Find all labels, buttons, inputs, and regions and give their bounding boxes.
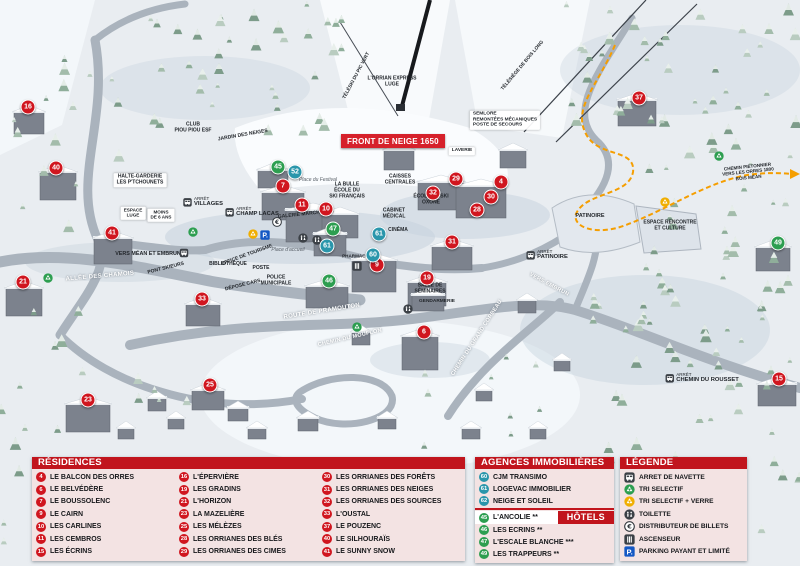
toilet-icon: [624, 509, 635, 520]
legend-key-label: ARRET DE NAVETTE: [639, 474, 705, 481]
legend-item-label: LES ORRIANES DES FORÊTS: [336, 474, 435, 481]
residences-header: RÉSIDENCES: [32, 457, 465, 469]
hotel-marker-badge: 46: [479, 525, 489, 535]
svg-text:P.: P.: [627, 547, 633, 556]
map-marker-21[interactable]: 21: [16, 275, 31, 290]
ski-resort-map-page: CLUB PIOU PIOU ESFJARDIN DES NEIGESHALTE…: [0, 0, 800, 566]
map-marker-16[interactable]: 16: [21, 100, 36, 115]
map-marker-23[interactable]: 23: [81, 393, 96, 408]
front-de-neige-banner: FRONT DE NEIGE 1650: [341, 134, 445, 148]
parking-icon: P.: [624, 546, 635, 557]
elevator-icon: [624, 534, 635, 545]
hotel-marker-badge: 45: [479, 513, 489, 523]
map-marker-60[interactable]: 60: [366, 248, 381, 263]
legend-item-49: 49LES TRAPPEURS **: [479, 548, 610, 560]
residence-marker-badge: 4: [36, 472, 46, 482]
legend-item-label: LA MAZELIÈRE: [193, 511, 244, 518]
residence-marker-badge: 37: [322, 522, 332, 532]
residences-column-3: 30LES ORRIANES DES FORÊTS31LES ORRIANES …: [322, 471, 461, 558]
residence-marker-badge: 23: [179, 509, 189, 519]
legend-item-29: 29LES ORRIANES DES CIMES: [179, 545, 318, 557]
legend-item-60: 60CJM TRANSIMO: [479, 471, 610, 483]
legend-item-47: 47L'ESCALE BLANCHE ***: [479, 536, 610, 548]
legend-key-bus: ARRET DE NAVETTE: [624, 471, 743, 483]
hotels-header-row: 45L'ANCOLIE **HÔTELS: [475, 511, 614, 524]
residences-column-1: 4LE BALCON DES ORRES6LE BELVÉDÈRE7LE BOU…: [36, 471, 175, 558]
residence-marker-badge: 7: [36, 497, 46, 507]
legend-item-label: LES TRAPPEURS **: [493, 551, 559, 558]
legend-item-label: L'ANCOLIE **: [493, 514, 538, 521]
legend-item-62: 62NEIGE ET SOLEIL: [479, 495, 610, 507]
agency-marker-badge: 61: [479, 484, 489, 494]
legend-item-16: 16L'ÉPERVIÈRE: [179, 471, 318, 483]
legend-key-label: PARKING PAYANT ET LIMITÉ: [639, 548, 730, 555]
legend-item-label: LE CAIRN: [50, 511, 83, 518]
map-marker-32[interactable]: 32: [426, 186, 441, 201]
map-marker-15[interactable]: 15: [772, 372, 787, 387]
residence-marker-badge: 10: [36, 522, 46, 532]
residence-marker-badge: 32: [322, 497, 332, 507]
legend-item-label: LES ECRINS **: [493, 527, 542, 534]
residence-marker-badge: 6: [36, 485, 46, 495]
agences-hotels-list: 60CJM TRANSIMO61LOGEVAC IMMOBILIER62NEIG…: [475, 469, 614, 563]
agency-marker-badge: 62: [479, 496, 489, 506]
legend-item-15: 15LES ÉCRINS: [36, 545, 175, 557]
map-marker-19[interactable]: 19: [420, 271, 435, 286]
legend-key-label: TRI SELECTIF: [639, 486, 683, 493]
map-marker-7[interactable]: 7: [276, 179, 291, 194]
legend-item-45: 45L'ANCOLIE **: [479, 512, 538, 524]
legend-key-elevator: ASCENSEUR: [624, 533, 743, 545]
agency-marker-badge: 60: [479, 472, 489, 482]
map-marker-25[interactable]: 25: [203, 378, 218, 393]
map-marker-41[interactable]: 41: [105, 226, 120, 241]
residence-marker-badge: 19: [179, 485, 189, 495]
legend-item-11: 11LES CEMBROS: [36, 533, 175, 545]
legend-item-label: L'ESCALE BLANCHE ***: [493, 539, 574, 546]
legend-item-label: CJM TRANSIMO: [493, 474, 547, 481]
map-marker-33[interactable]: 33: [195, 292, 210, 307]
legend-item-label: L'HORIZON: [193, 498, 231, 505]
residence-marker-badge: 40: [322, 534, 332, 544]
map-marker-45[interactable]: 45: [271, 160, 286, 175]
residences-column-2: 16L'ÉPERVIÈRE19LES GRADINS21L'HORIZON23L…: [179, 471, 318, 558]
legend-item-32: 32LES ORRIANES DES SOURCES: [322, 496, 461, 508]
residences-list: 4LE BALCON DES ORRES6LE BELVÉDÈRE7LE BOU…: [32, 469, 465, 561]
legend-item-6: 6LE BELVÉDÈRE: [36, 483, 175, 495]
legend-item-4: 4LE BALCON DES ORRES: [36, 471, 175, 483]
map-marker-11[interactable]: 11: [295, 198, 310, 213]
residence-marker-badge: 29: [179, 547, 189, 557]
map-marker-29[interactable]: 29: [449, 172, 464, 187]
legend-item-10: 10LES CARLINES: [36, 521, 175, 533]
legend-key-label: ASCENSEUR: [639, 536, 680, 543]
legend-item-label: LES ORRIANES DES BLÉS: [193, 536, 282, 543]
map-marker-40[interactable]: 40: [49, 161, 64, 176]
recycleglass-icon: [624, 496, 635, 507]
legend-item-46: 46LES ECRINS **: [479, 524, 610, 536]
legend-item-7: 7LE BOUSSOLENC: [36, 496, 175, 508]
map-marker-4[interactable]: 4: [494, 175, 509, 190]
legend-item-19: 19LES GRADINS: [179, 483, 318, 495]
residence-marker-badge: 41: [322, 547, 332, 557]
legend-item-31: 31LES ORRIANES DES NEIGES: [322, 483, 461, 495]
legend-item-label: LOGEVAC IMMOBILIER: [493, 486, 571, 493]
legend-key-parking: P.PARKING PAYANT ET LIMITÉ: [624, 545, 743, 557]
legend-item-40: 40LE SILHOURAÏS: [322, 533, 461, 545]
residence-marker-badge: 21: [179, 497, 189, 507]
legend-item-label: LES ORRIANES DES CIMES: [193, 548, 286, 555]
legend-item-30: 30LES ORRIANES DES FORÊTS: [322, 471, 461, 483]
hotels-header: HÔTELS: [558, 511, 614, 524]
map-marker-52[interactable]: 52: [288, 165, 303, 180]
residence-marker-badge: 33: [322, 509, 332, 519]
map-marker-61[interactable]: 61: [372, 227, 387, 242]
map-marker-47[interactable]: 47: [326, 222, 341, 237]
map-marker-30[interactable]: 30: [484, 190, 499, 205]
hotel-marker-badge: 47: [479, 537, 489, 547]
legend-item-label: LES MÉLÈZES: [193, 523, 242, 530]
legende-list: ARRET DE NAVETTETRI SELECTIFTRI SELECTIF…: [620, 469, 747, 561]
legend-item-label: LES CARLINES: [50, 523, 101, 530]
legend-item-label: LE SUNNY SNOW: [336, 548, 395, 555]
legend-item-label: LE BOUSSOLENC: [50, 498, 110, 505]
legend-item-41: 41LE SUNNY SNOW: [322, 545, 461, 557]
map-marker-28[interactable]: 28: [470, 203, 485, 218]
legend-item-37: 37LE POUZENC: [322, 521, 461, 533]
residence-marker-badge: 25: [179, 522, 189, 532]
legend-item-9: 9LE CAIRN: [36, 508, 175, 520]
legend-item-label: LE BALCON DES ORRES: [50, 474, 134, 481]
residences-panel: RÉSIDENCES 4LE BALCON DES ORRES6LE BELVÉ…: [32, 457, 465, 561]
map-marker-10[interactable]: 10: [319, 202, 334, 217]
map-marker-31[interactable]: 31: [445, 235, 460, 250]
map-marker-46[interactable]: 46: [322, 274, 337, 289]
legend-item-25: 25LES MÉLÈZES: [179, 521, 318, 533]
map-marker-61[interactable]: 61: [320, 239, 335, 254]
legend-item-label: LE POUZENC: [336, 523, 381, 530]
legend-item-28: 28LES ORRIANES DES BLÉS: [179, 533, 318, 545]
legend-key-label: DISTRIBUTEUR DE BILLETS: [639, 523, 728, 530]
map-marker-6[interactable]: 6: [417, 325, 432, 340]
legende-header: LÉGENDE: [620, 457, 747, 469]
bus-icon: [624, 472, 635, 483]
legend-item-33: 33L'OUSTAL: [322, 508, 461, 520]
legend-key-label: TRI SELECTIF + VERRE: [639, 498, 714, 505]
legend-item-label: LES ÉCRINS: [50, 548, 92, 555]
legend-item-label: LES CEMBROS: [50, 536, 101, 543]
atm-icon: €: [624, 521, 635, 532]
residence-marker-badge: 9: [36, 509, 46, 519]
map-marker-49[interactable]: 49: [771, 236, 786, 251]
divider: [475, 508, 614, 510]
agences-panel: AGENCES IMMOBILIÈRES 60CJM TRANSIMO61LOG…: [475, 457, 614, 563]
hotel-marker-badge: 49: [479, 549, 489, 559]
recycle-icon: [624, 484, 635, 495]
agences-header: AGENCES IMMOBILIÈRES: [475, 457, 614, 469]
residence-marker-badge: 15: [36, 547, 46, 557]
svg-text:€: €: [626, 523, 632, 531]
legend-key-recycle: TRI SELECTIF: [624, 483, 743, 495]
legend-item-label: LES GRADINS: [193, 486, 241, 493]
residence-marker-badge: 31: [322, 485, 332, 495]
legend-key-recycleglass: TRI SELECTIF + VERRE: [624, 496, 743, 508]
residence-marker-badge: 11: [36, 534, 46, 544]
legend-item-label: LES ORRIANES DES SOURCES: [336, 498, 441, 505]
legend-item-label: L'ÉPERVIÈRE: [193, 474, 239, 481]
legend-item-23: 23LA MAZELIÈRE: [179, 508, 318, 520]
legend-item-61: 61LOGEVAC IMMOBILIER: [479, 483, 610, 495]
legend-item-label: L'OUSTAL: [336, 511, 370, 518]
legend-item-label: LE BELVÉDÈRE: [50, 486, 103, 493]
legende-panel: LÉGENDE ARRET DE NAVETTETRI SELECTIFTRI …: [620, 457, 747, 561]
legend-item-label: LES ORRIANES DES NEIGES: [336, 486, 433, 493]
residence-marker-badge: 28: [179, 534, 189, 544]
legend-item-label: NEIGE ET SOLEIL: [493, 498, 553, 505]
legend-item-21: 21L'HORIZON: [179, 496, 318, 508]
legend-key-atm: €DISTRIBUTEUR DE BILLETS: [624, 521, 743, 533]
legend-item-label: LE SILHOURAÏS: [336, 536, 390, 543]
legend-key-toilet: TOILETTE: [624, 508, 743, 520]
residence-marker-badge: 16: [179, 472, 189, 482]
legend-key-label: TOILETTE: [639, 511, 671, 518]
residence-marker-badge: 30: [322, 472, 332, 482]
map-marker-37[interactable]: 37: [632, 91, 647, 106]
